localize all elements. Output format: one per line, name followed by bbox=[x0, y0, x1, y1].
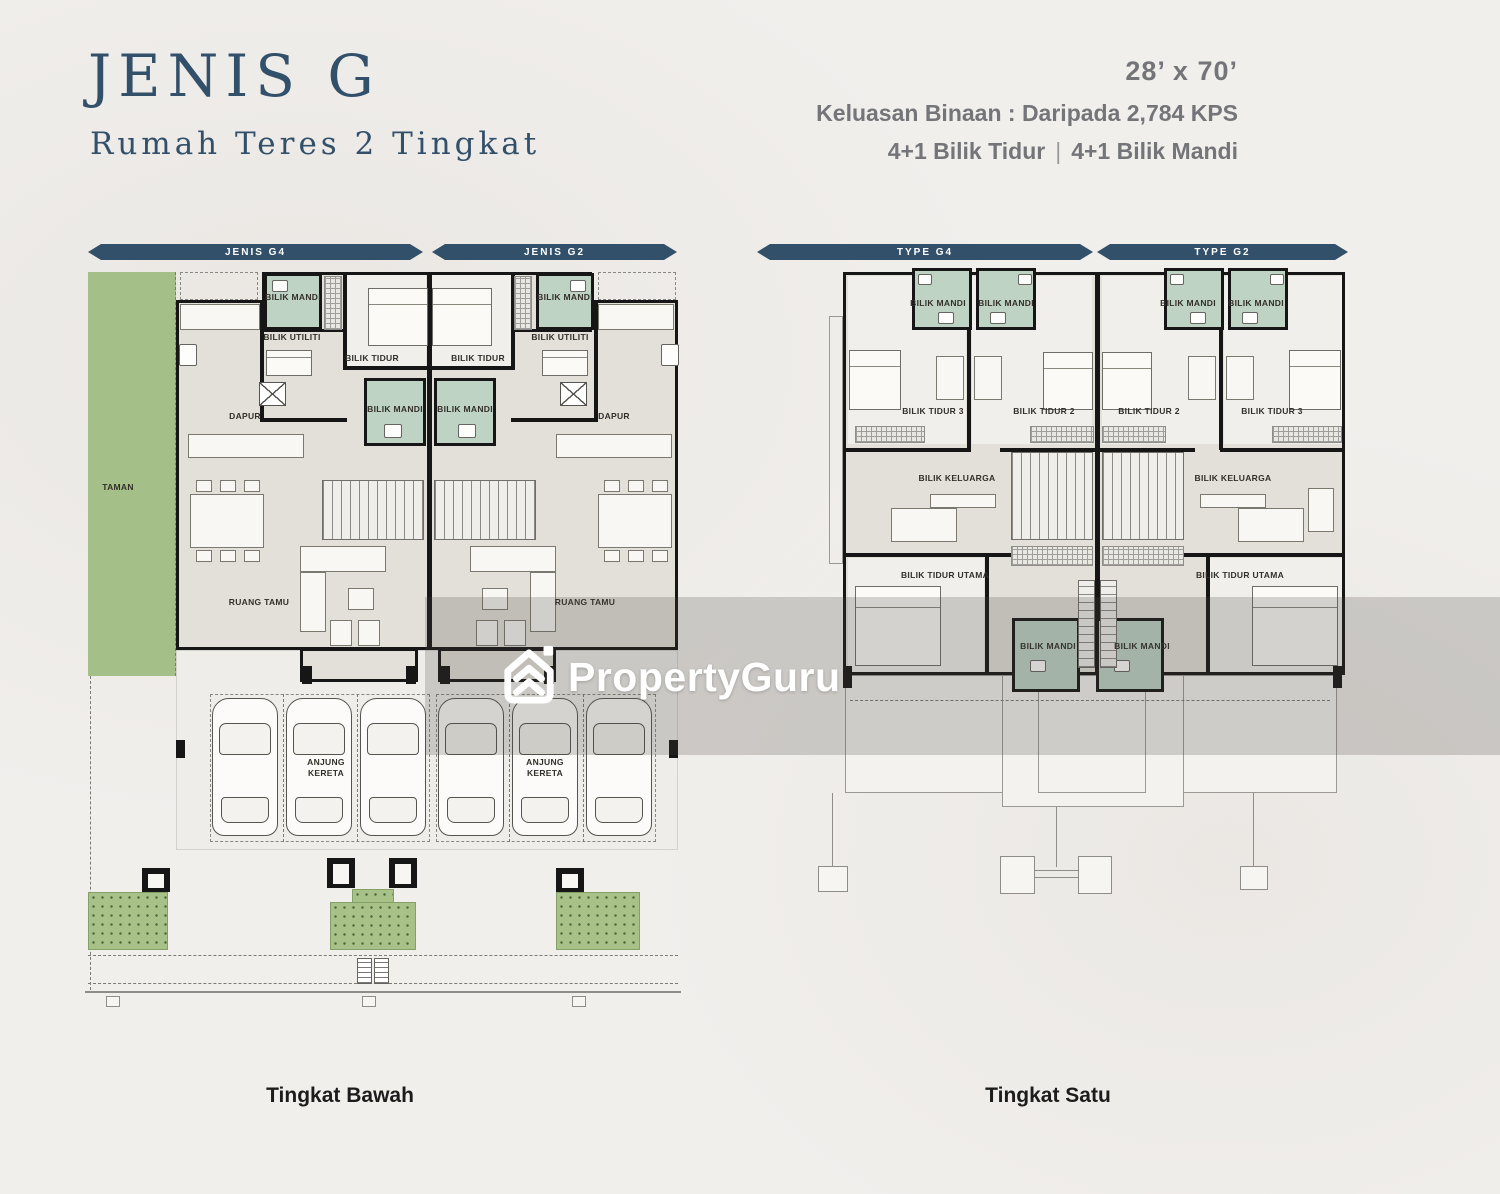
sofa bbox=[300, 572, 326, 632]
bed bbox=[1043, 352, 1093, 410]
wall bbox=[511, 418, 598, 422]
toilet-icon bbox=[938, 312, 954, 324]
coffee-table bbox=[348, 588, 374, 610]
chair bbox=[220, 480, 236, 492]
bed bbox=[849, 350, 901, 410]
chair bbox=[652, 480, 668, 492]
first-floor-caption: Tingkat Satu bbox=[985, 1084, 1111, 1108]
wall bbox=[260, 418, 347, 422]
drain-marker bbox=[572, 996, 586, 1007]
dining-table bbox=[598, 494, 672, 548]
wardrobe-hatch bbox=[1272, 426, 1342, 443]
chair bbox=[196, 550, 212, 562]
plan-title: JENIS G bbox=[88, 42, 540, 110]
car-icon bbox=[360, 698, 426, 836]
room-label-bilik-tidur: BILIK TIDUR bbox=[345, 353, 399, 363]
drain-marker bbox=[362, 996, 376, 1007]
bed bbox=[432, 288, 492, 346]
roof-line bbox=[1253, 793, 1254, 868]
sink-icon bbox=[918, 274, 932, 285]
rooms-summary: 4+1 Bilik Tidur|4+1 Bilik Mandi bbox=[816, 138, 1238, 165]
roof-line bbox=[832, 793, 833, 868]
sink-icon bbox=[1270, 274, 1284, 285]
plan-title-block: JENIS G Rumah Teres 2 Tingkat bbox=[88, 42, 540, 162]
awning-outline bbox=[598, 272, 676, 300]
desk bbox=[1308, 488, 1334, 532]
separator: | bbox=[1045, 138, 1071, 164]
gate-pillar bbox=[556, 868, 584, 892]
road-edge bbox=[85, 991, 681, 993]
room-label-bilik-tidur-3: BILIK TIDUR 3 bbox=[902, 406, 964, 416]
floorplan-page: JENIS G Rumah Teres 2 Tingkat 28’ x 70’ … bbox=[0, 0, 1500, 1194]
kitchen-counter bbox=[598, 304, 674, 330]
staircase bbox=[1102, 452, 1184, 540]
kitchen-island bbox=[560, 382, 587, 406]
room-label-taman: TAMAN bbox=[102, 482, 134, 492]
planter-patch bbox=[556, 892, 640, 950]
staircase bbox=[1011, 452, 1093, 540]
roof-line bbox=[1056, 807, 1057, 867]
room-label-anjung-kereta: ANJUNG KERETA bbox=[302, 757, 350, 779]
sink-icon bbox=[1170, 274, 1184, 285]
chair bbox=[628, 480, 644, 492]
room-label-bilik-mandi: BILIK MANDI bbox=[978, 298, 1034, 308]
bed bbox=[368, 288, 428, 346]
lot-size: 28’ x 70’ bbox=[816, 56, 1238, 87]
wall bbox=[846, 448, 971, 452]
sofa bbox=[1238, 508, 1304, 542]
planter-patch bbox=[330, 902, 416, 950]
kitchen-island bbox=[259, 382, 286, 406]
stair-hatch bbox=[1011, 546, 1093, 566]
sofa bbox=[470, 546, 556, 572]
stove-icon bbox=[179, 344, 197, 366]
staircase bbox=[322, 480, 424, 540]
room-label-bilik-tidur-utama: BILIK TIDUR UTAMA bbox=[901, 570, 989, 580]
ground-floor-caption: Tingkat Bawah bbox=[266, 1084, 414, 1108]
lot-boundary bbox=[88, 955, 678, 956]
kitchen-counter bbox=[180, 304, 260, 330]
chair bbox=[220, 550, 236, 562]
unit-banner-type-g4: TYPE G4 bbox=[757, 244, 1093, 260]
room-label-bilik-keluarga: BILIK KELUARGA bbox=[1195, 473, 1272, 483]
desk bbox=[1226, 356, 1254, 400]
room-label-bilik-mandi: BILIK MANDI bbox=[1160, 298, 1216, 308]
toilet-icon bbox=[384, 424, 402, 438]
staircase bbox=[434, 480, 536, 540]
room-label-bilik-mandi: BILIK MANDI bbox=[367, 404, 423, 414]
bed bbox=[1289, 350, 1341, 410]
wardrobe-hatch bbox=[514, 276, 532, 330]
desk bbox=[936, 356, 964, 400]
room-label-bilik-utiliti: BILIK UTILITI bbox=[263, 332, 320, 342]
bedrooms-count: 4+1 Bilik Tidur bbox=[888, 138, 1045, 164]
chair bbox=[196, 480, 212, 492]
wall bbox=[343, 366, 515, 370]
planter-patch bbox=[88, 892, 168, 950]
chair bbox=[244, 550, 260, 562]
unit-banner-type-g2: TYPE G2 bbox=[1097, 244, 1348, 260]
porch-pillar bbox=[406, 666, 416, 684]
room-label-bilik-utiliti: BILIK UTILITI bbox=[531, 332, 588, 342]
plan-subtitle: Rumah Teres 2 Tingkat bbox=[90, 126, 540, 162]
sink-icon bbox=[272, 280, 288, 292]
gate-link bbox=[1035, 870, 1079, 878]
room-label-bilik-mandi: BILIK MANDI bbox=[537, 292, 593, 302]
bay-divider bbox=[283, 694, 284, 842]
wardrobe-hatch bbox=[855, 426, 925, 443]
boundary-post bbox=[176, 740, 185, 758]
chair bbox=[628, 550, 644, 562]
meter-box bbox=[357, 958, 372, 984]
sink-icon bbox=[1018, 274, 1032, 285]
wardrobe-hatch bbox=[1102, 426, 1166, 443]
toilet-icon bbox=[1190, 312, 1206, 324]
wall bbox=[1220, 448, 1342, 452]
propertyguru-logo-icon bbox=[500, 642, 558, 713]
room-label-dapur: DAPUR bbox=[229, 411, 261, 421]
wardrobe-hatch bbox=[324, 276, 342, 330]
utility-bed bbox=[266, 350, 312, 376]
porch-pillar bbox=[302, 666, 312, 684]
chair bbox=[244, 480, 260, 492]
tv-cabinet bbox=[1200, 494, 1266, 508]
room-label-anjung-kereta: ANJUNG KERETA bbox=[521, 757, 569, 779]
spec-block: 28’ x 70’ Keluasan Binaan : Daripada 2,7… bbox=[816, 56, 1238, 165]
room-label-dapur: DAPUR bbox=[598, 411, 630, 421]
kitchen-counter bbox=[188, 434, 304, 458]
room-label-bilik-keluarga: BILIK KELUARGA bbox=[919, 473, 996, 483]
dining-table bbox=[190, 494, 264, 548]
watermark-brand: PropertyGuru bbox=[568, 654, 841, 701]
room-label-bilik-mandi: BILIK MANDI bbox=[265, 292, 321, 302]
room-label-bilik-mandi: BILIK MANDI bbox=[1228, 298, 1284, 308]
desk bbox=[974, 356, 1002, 400]
chair bbox=[604, 550, 620, 562]
armchair bbox=[358, 620, 380, 646]
room-label-bilik-tidur-2: BILIK TIDUR 2 bbox=[1013, 406, 1075, 416]
column-marker bbox=[1078, 856, 1112, 894]
gate-pillar bbox=[142, 868, 170, 892]
unit-banner-jenis-g4: JENIS G4 bbox=[88, 244, 423, 260]
column-marker bbox=[1000, 856, 1035, 894]
tv-cabinet bbox=[930, 494, 996, 508]
stair-hatch bbox=[1102, 546, 1184, 566]
utility-bed bbox=[542, 350, 588, 376]
sofa bbox=[300, 546, 386, 572]
wardrobe-hatch bbox=[1030, 426, 1094, 443]
toilet-icon bbox=[1242, 312, 1258, 324]
room-label-bilik-mandi: BILIK MANDI bbox=[910, 298, 966, 308]
chair bbox=[652, 550, 668, 562]
built-up-area: Keluasan Binaan : Daripada 2,784 KPS bbox=[816, 100, 1238, 127]
room-label-ruang-tamu: RUANG TAMU bbox=[229, 597, 289, 607]
awning-outline bbox=[180, 272, 258, 300]
gate-pillar bbox=[389, 858, 417, 888]
column-marker bbox=[818, 866, 848, 892]
armchair bbox=[330, 620, 352, 646]
bay-divider bbox=[357, 694, 358, 842]
stove-icon bbox=[661, 344, 679, 366]
garden-area bbox=[88, 272, 176, 676]
side-overhang bbox=[829, 316, 843, 564]
desk bbox=[1188, 356, 1216, 400]
entrance-porch bbox=[300, 648, 418, 682]
column-marker bbox=[1240, 866, 1268, 890]
car-icon bbox=[212, 698, 278, 836]
kitchen-counter bbox=[556, 434, 672, 458]
room-label-bilik-mandi: BILIK MANDI bbox=[437, 404, 493, 414]
toilet-icon bbox=[990, 312, 1006, 324]
sofa bbox=[891, 508, 957, 542]
sink-icon bbox=[570, 280, 586, 292]
room-label-bilik-tidur-utama: BILIK TIDUR UTAMA bbox=[1196, 570, 1284, 580]
drain-marker bbox=[106, 996, 120, 1007]
room-label-bilik-tidur-2: BILIK TIDUR 2 bbox=[1118, 406, 1180, 416]
room-label-bilik-tidur-3: BILIK TIDUR 3 bbox=[1241, 406, 1303, 416]
bed bbox=[1102, 352, 1152, 410]
room-label-bilik-tidur: BILIK TIDUR bbox=[451, 353, 505, 363]
bathrooms-count: 4+1 Bilik Mandi bbox=[1071, 138, 1238, 164]
chair bbox=[604, 480, 620, 492]
toilet-icon bbox=[458, 424, 476, 438]
watermark: PropertyGuru bbox=[500, 642, 841, 713]
unit-banner-jenis-g2: JENIS G2 bbox=[432, 244, 677, 260]
meter-box bbox=[374, 958, 389, 984]
gate-pillar bbox=[327, 858, 355, 888]
